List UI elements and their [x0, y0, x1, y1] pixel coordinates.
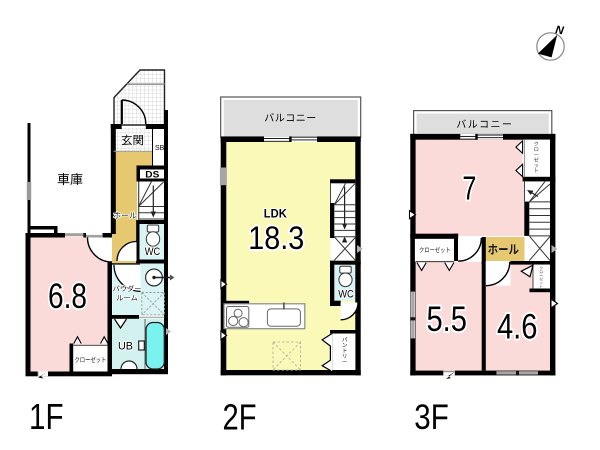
svg-text:7: 7 — [462, 170, 476, 207]
svg-text:DS: DS — [145, 169, 159, 180]
svg-text:SB: SB — [155, 145, 165, 152]
svg-text:2F: 2F — [223, 397, 257, 438]
svg-text:WC: WC — [338, 289, 354, 301]
svg-text:18.3: 18.3 — [248, 220, 304, 256]
svg-text:4.6: 4.6 — [497, 308, 538, 347]
svg-text:6.8: 6.8 — [48, 276, 87, 316]
svg-text:5.5: 5.5 — [426, 299, 467, 339]
svg-text:UB: UB — [118, 341, 133, 353]
svg-text:1F: 1F — [29, 396, 64, 437]
svg-text:3F: 3F — [414, 398, 449, 437]
svg-text:WC: WC — [145, 246, 161, 258]
svg-text:LDK: LDK — [264, 209, 288, 221]
